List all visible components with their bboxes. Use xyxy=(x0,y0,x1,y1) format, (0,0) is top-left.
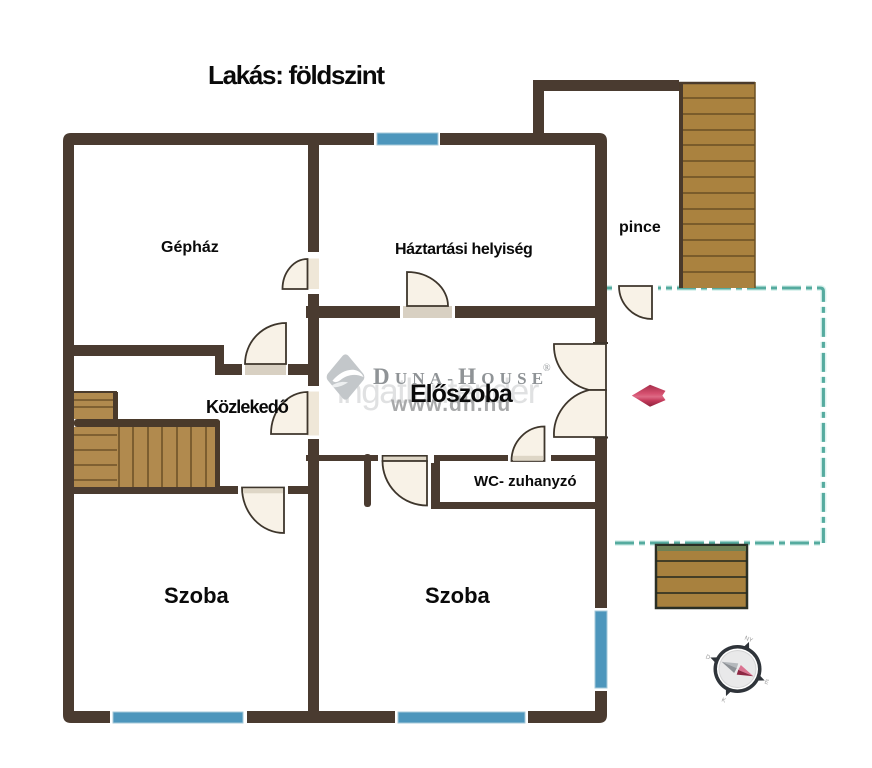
svg-text:®: ® xyxy=(543,363,551,374)
svg-text:Háztartási helyiség: Háztartási helyiség xyxy=(395,241,532,258)
svg-text:Közlekedő: Közlekedő xyxy=(206,397,289,417)
svg-text:pince: pince xyxy=(619,219,661,236)
svg-text:Szoba: Szoba xyxy=(425,583,491,608)
svg-text:WC- zuhanyzó: WC- zuhanyzó xyxy=(474,473,577,490)
svg-text:Előszoba: Előszoba xyxy=(410,380,514,408)
svg-text:Gépház: Gépház xyxy=(161,239,219,256)
svg-text:Szoba: Szoba xyxy=(164,583,230,608)
svg-text:Lakás: földszint: Lakás: földszint xyxy=(208,60,385,90)
